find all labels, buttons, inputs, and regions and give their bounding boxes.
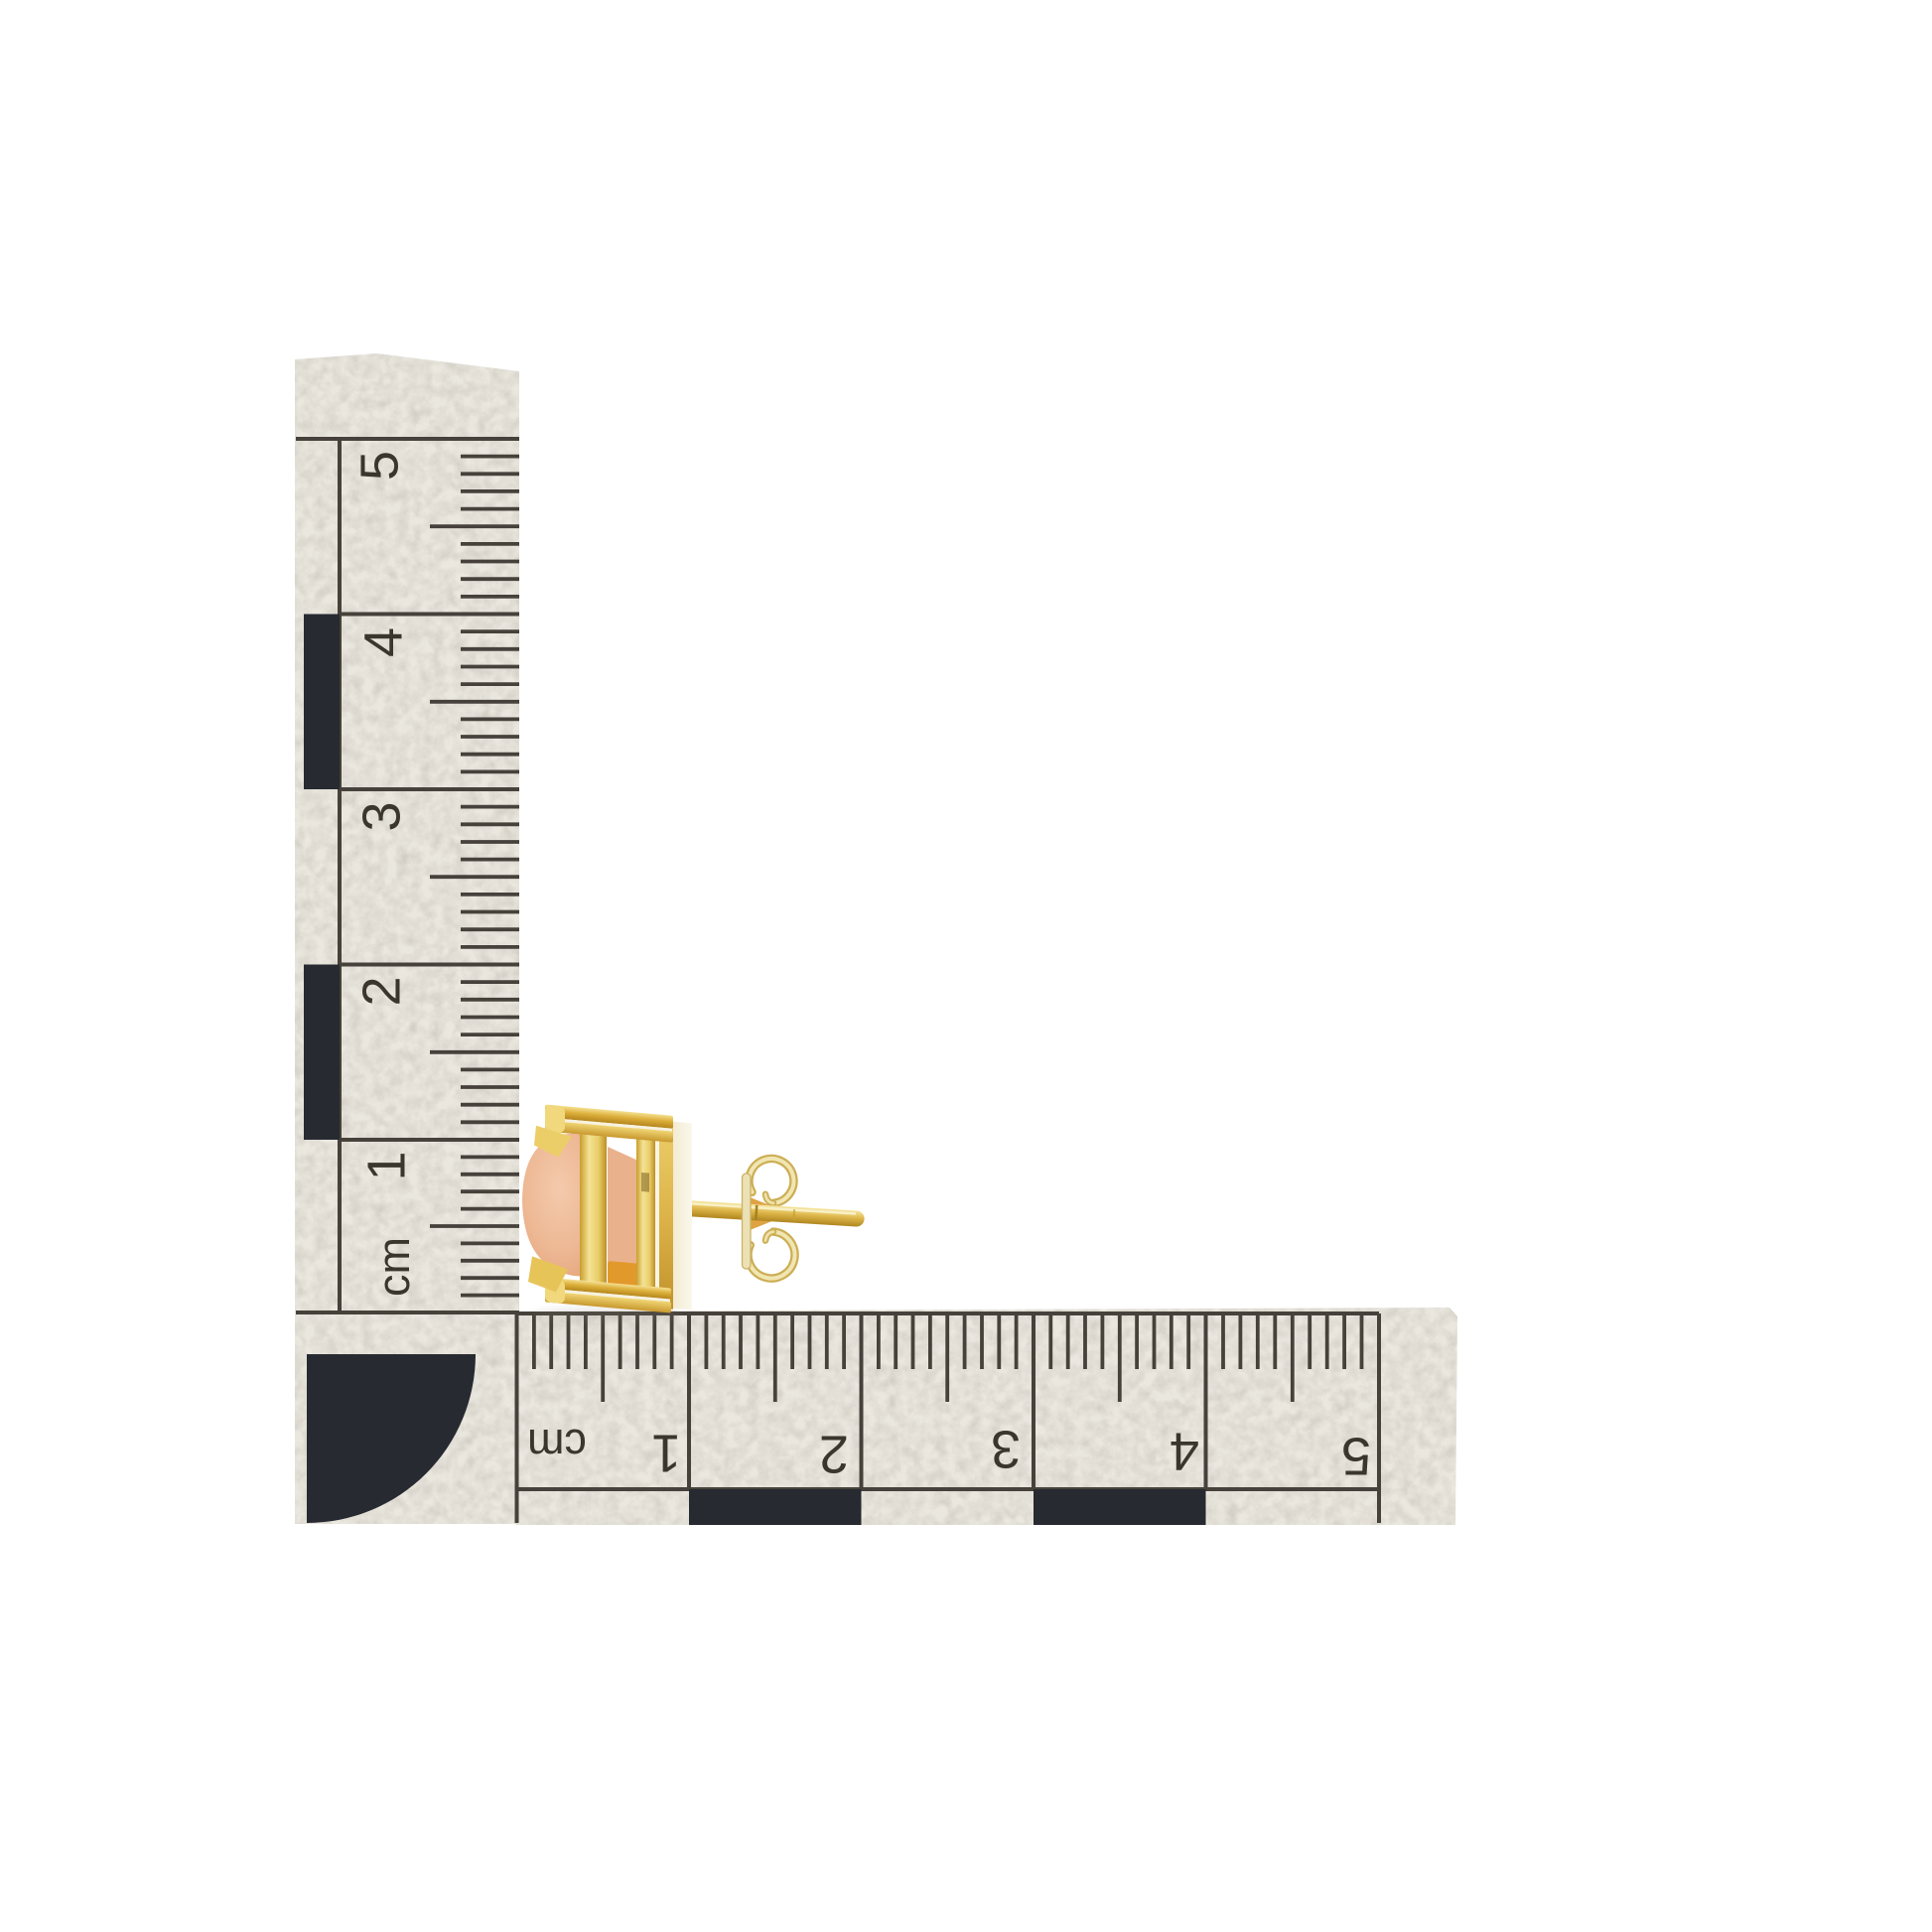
svg-text:2: 2 — [819, 1425, 849, 1484]
svg-text:2: 2 — [351, 976, 411, 1006]
svg-text:1: 1 — [356, 1151, 416, 1180]
svg-text:5: 5 — [1341, 1427, 1371, 1486]
svg-text:1: 1 — [651, 1424, 681, 1483]
svg-text:3: 3 — [351, 801, 411, 831]
svg-text:cm: cm — [527, 1420, 587, 1470]
svg-text:5: 5 — [349, 451, 409, 481]
svg-text:cm: cm — [368, 1237, 419, 1297]
svg-text:4: 4 — [1170, 1422, 1199, 1481]
svg-text:3: 3 — [991, 1420, 1021, 1479]
svg-text:4: 4 — [353, 627, 413, 657]
